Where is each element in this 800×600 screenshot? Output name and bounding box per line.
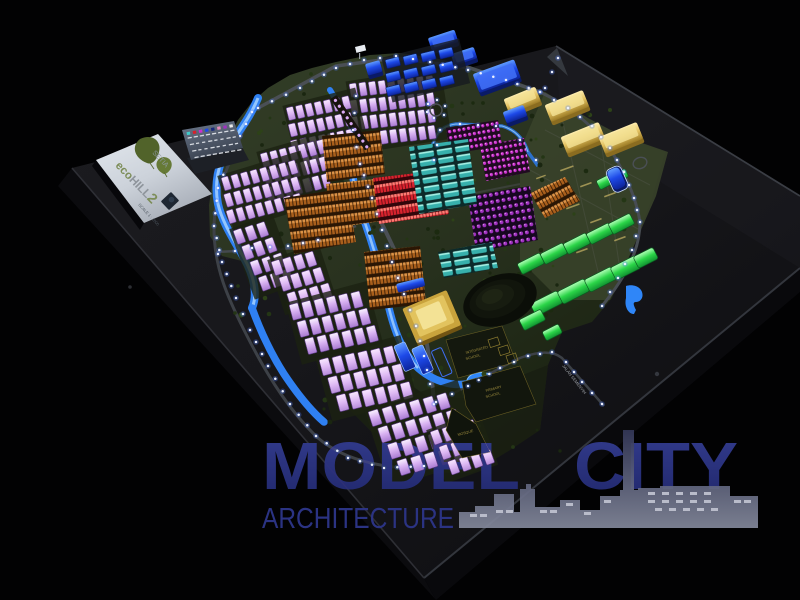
svg-text:MODEL: MODEL [262, 429, 520, 504]
svg-text:ARCHITECTURE: ARCHITECTURE [262, 503, 454, 535]
